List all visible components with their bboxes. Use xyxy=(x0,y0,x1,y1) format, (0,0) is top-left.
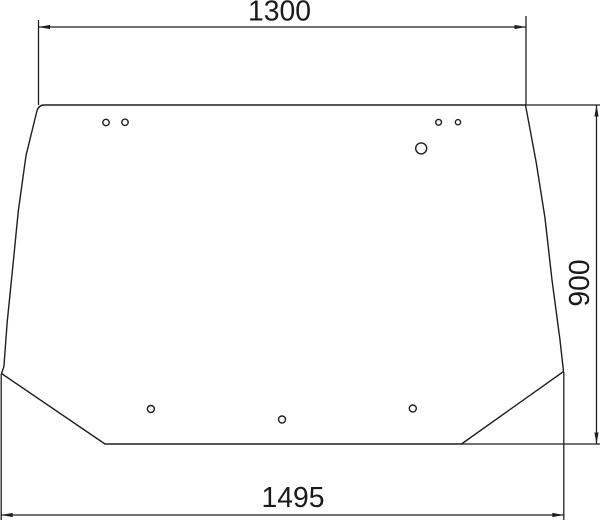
svg-text:1300: 1300 xyxy=(248,0,311,27)
svg-text:1495: 1495 xyxy=(262,481,325,513)
svg-text:900: 900 xyxy=(563,259,595,306)
